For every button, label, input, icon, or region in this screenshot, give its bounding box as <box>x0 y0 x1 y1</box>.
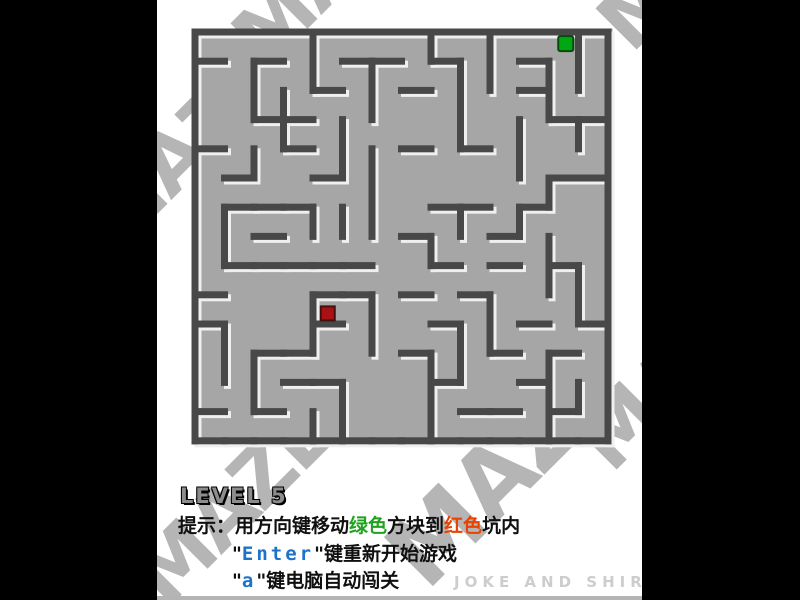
level-label: LEVEL 5 <box>180 484 288 508</box>
enter-line-rest: 键重新开始游戏 <box>324 543 457 565</box>
hint-suffix: 坑内 <box>482 515 520 537</box>
auto-line-rest: 键电脑自动闯关 <box>266 570 399 592</box>
enter-key-line: "Enter"键重新开始游戏 <box>232 539 457 566</box>
credit-label: JOKE AND SHIRLEY <box>454 573 642 591</box>
game-stage: MAZEMAZEMAZEMAZEMAZEMAZE LEVEL 5 提示：用方向键… <box>0 0 800 600</box>
auto-key-line: "a"键电脑自动闯关 <box>232 566 399 593</box>
quote: " <box>314 543 324 565</box>
game-panel: MAZEMAZEMAZEMAZEMAZEMAZE LEVEL 5 提示：用方向键… <box>157 0 642 600</box>
quote: " <box>256 570 266 592</box>
hint-mid: 方块到 <box>387 515 444 537</box>
hint-prefix: 提示：用方向键移动 <box>178 515 349 537</box>
green-block[interactable] <box>558 36 573 51</box>
hint-line: 提示：用方向键移动绿色方块到红色坑内 <box>178 511 520 538</box>
quote: " <box>232 543 242 565</box>
right-black-bar <box>642 0 800 600</box>
maze-board <box>188 25 616 450</box>
a-key-label: a <box>242 570 256 592</box>
quote: " <box>232 570 242 592</box>
red-pit <box>321 306 335 320</box>
enter-key-label: Enter <box>242 543 314 565</box>
hint-green-word: 绿色 <box>349 515 387 537</box>
hint-red-word: 红色 <box>444 515 482 537</box>
left-black-bar <box>0 0 157 600</box>
bottom-watermark-strip <box>157 596 642 600</box>
